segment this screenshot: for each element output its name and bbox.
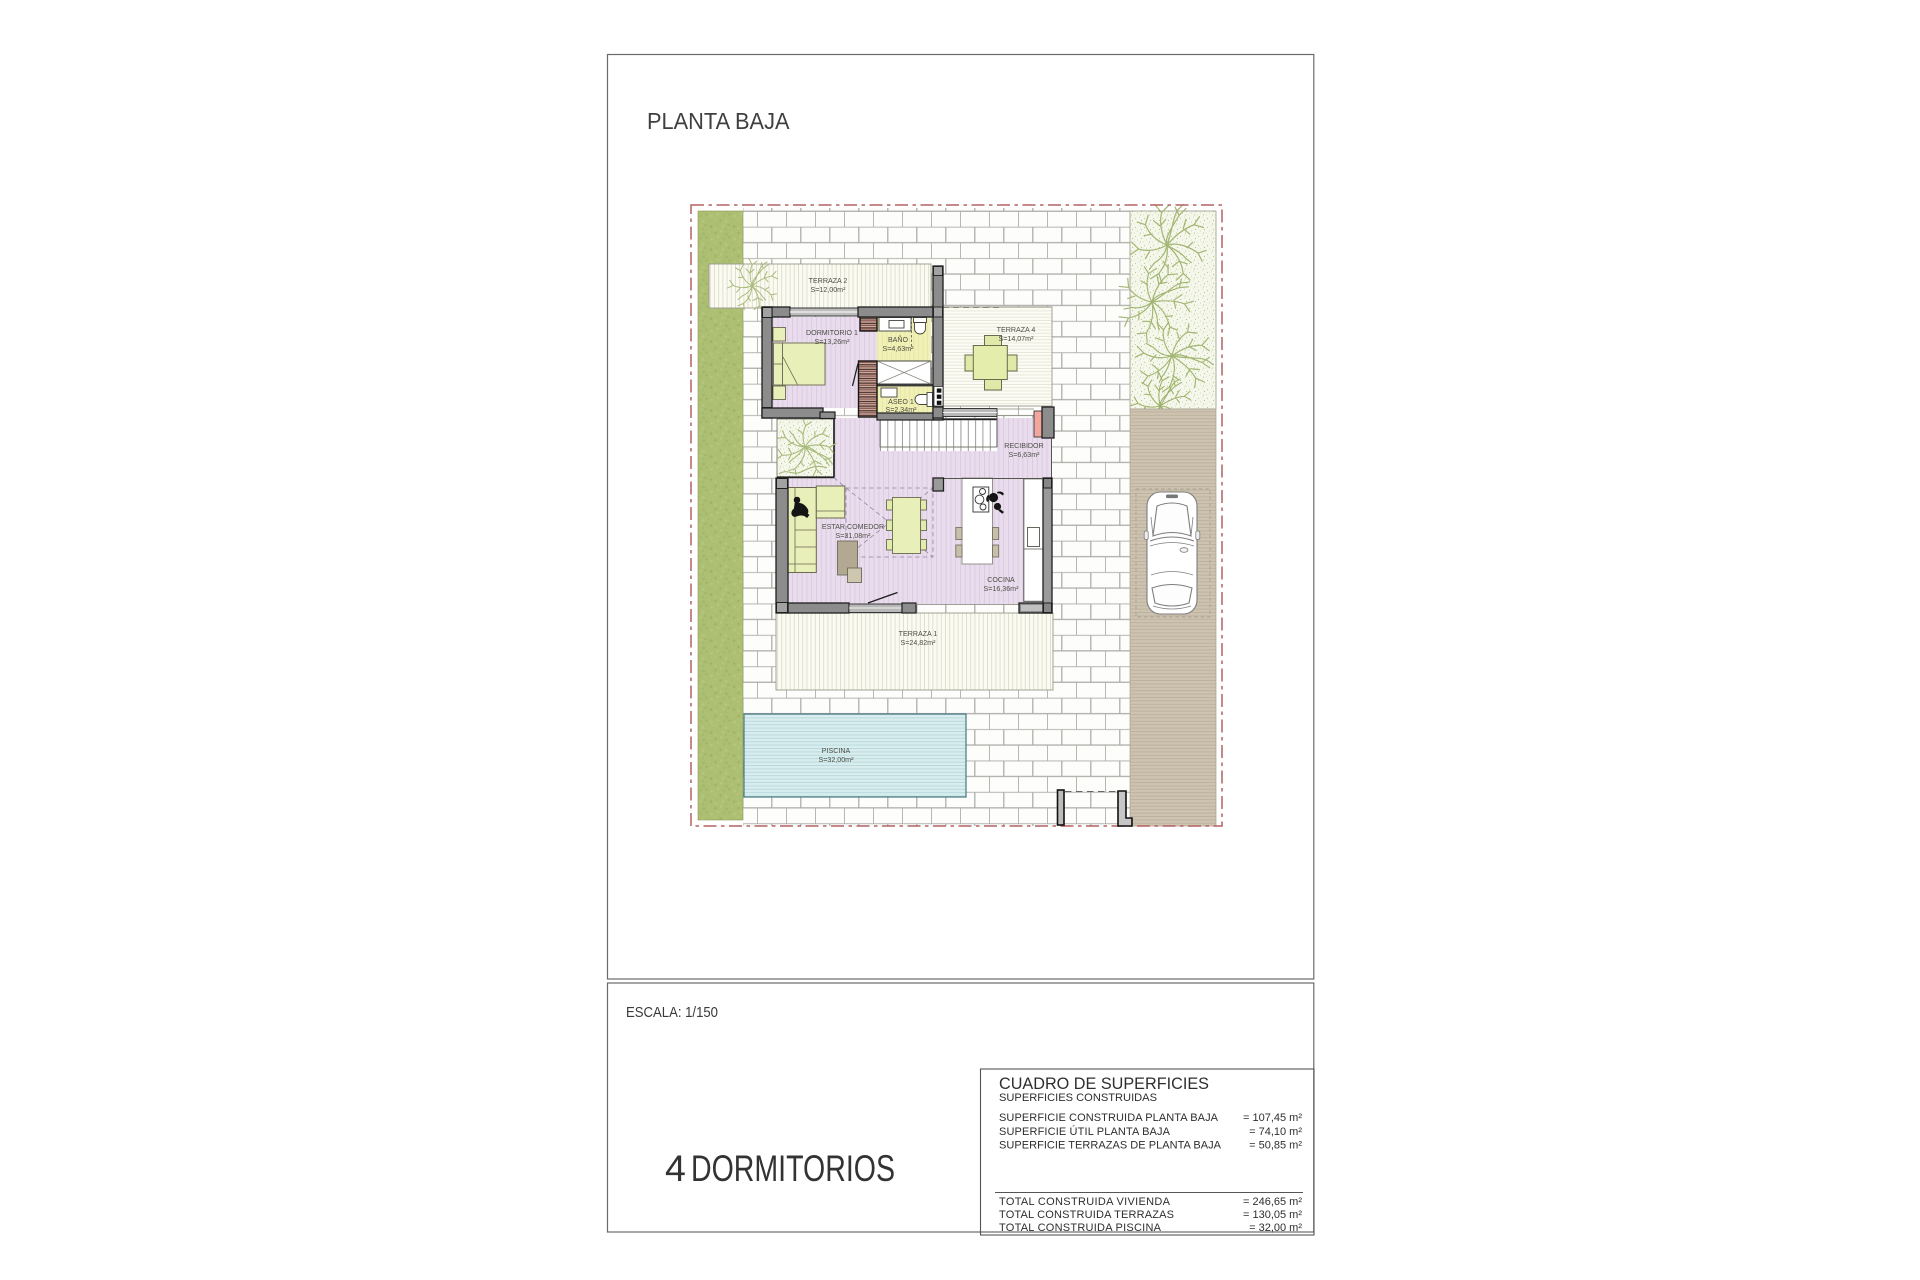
svg-text:S=24,82m²: S=24,82m²	[901, 639, 937, 647]
svg-text:DORMITORIOS: DORMITORIOS	[691, 1147, 895, 1189]
svg-text:ASEO 1: ASEO 1	[888, 398, 914, 406]
svg-text:RECIBIDOR: RECIBIDOR	[1004, 442, 1043, 450]
svg-text:TOTAL CONSTRUIDA VIVIENDA: TOTAL CONSTRUIDA VIVIENDA	[999, 1196, 1171, 1208]
svg-text:S=16,36m²: S=16,36m²	[984, 585, 1020, 593]
svg-text:COCINA: COCINA	[987, 576, 1015, 584]
svg-text:S=12,00m²: S=12,00m²	[811, 286, 847, 294]
svg-text:TERRAZA 2: TERRAZA 2	[809, 277, 848, 285]
svg-text:PISCINA: PISCINA	[822, 747, 851, 755]
svg-text:= 74,10 m²: = 74,10 m²	[1249, 1126, 1302, 1138]
svg-text:BAÑO: BAÑO	[888, 335, 909, 344]
svg-text:S=14,07m²: S=14,07m²	[999, 335, 1035, 343]
svg-text:TERRAZA 1: TERRAZA 1	[899, 630, 938, 638]
svg-text:SUPERFICIES CONSTRUIDAS: SUPERFICIES CONSTRUIDAS	[999, 1092, 1157, 1104]
svg-text:S=32,00m²: S=32,00m²	[819, 756, 855, 764]
svg-text:SUPERFICIE ÚTIL PLANTA BAJA: SUPERFICIE ÚTIL PLANTA BAJA	[999, 1125, 1171, 1138]
svg-text:S=31,08m²: S=31,08m²	[836, 532, 872, 540]
svg-text:CUADRO DE SUPERFICIES: CUADRO DE SUPERFICIES	[999, 1075, 1209, 1093]
svg-text:S=6,63m²: S=6,63m²	[1009, 451, 1041, 459]
svg-text:= 107,45 m²: = 107,45 m²	[1243, 1112, 1302, 1124]
svg-text:4: 4	[665, 1147, 686, 1189]
svg-text:SUPERFICIE TERRAZAS DE PLANTA: SUPERFICIE TERRAZAS DE PLANTA BAJA	[999, 1140, 1222, 1152]
svg-text:= 246,65 m²: = 246,65 m²	[1243, 1196, 1302, 1208]
svg-text:S=13,26m²: S=13,26m²	[815, 338, 851, 346]
svg-text:SUPERFICIE CONSTRUIDA PLANTA B: SUPERFICIE CONSTRUIDA PLANTA BAJA	[999, 1112, 1219, 1124]
svg-text:ESTAR COMEDOR: ESTAR COMEDOR	[822, 523, 884, 531]
svg-text:ESCALA: 1/150: ESCALA: 1/150	[626, 1004, 718, 1021]
svg-text:PLANTA BAJA: PLANTA BAJA	[647, 108, 790, 134]
svg-text:TOTAL CONSTRUIDA TERRAZAS: TOTAL CONSTRUIDA TERRAZAS	[999, 1209, 1174, 1221]
svg-text:DORMITORIO 1: DORMITORIO 1	[806, 329, 858, 337]
svg-text:S=4,63m²: S=4,63m²	[883, 345, 915, 353]
svg-text:= 130,05 m²: = 130,05 m²	[1243, 1209, 1302, 1221]
svg-text:= 50,85 m²: = 50,85 m²	[1249, 1140, 1302, 1152]
svg-text:TOTAL CONSTRUIDA PISCINA: TOTAL CONSTRUIDA PISCINA	[999, 1222, 1162, 1234]
svg-text:TERRAZA 4: TERRAZA 4	[997, 326, 1036, 334]
svg-text:= 32,00 m²: = 32,00 m²	[1249, 1222, 1302, 1234]
